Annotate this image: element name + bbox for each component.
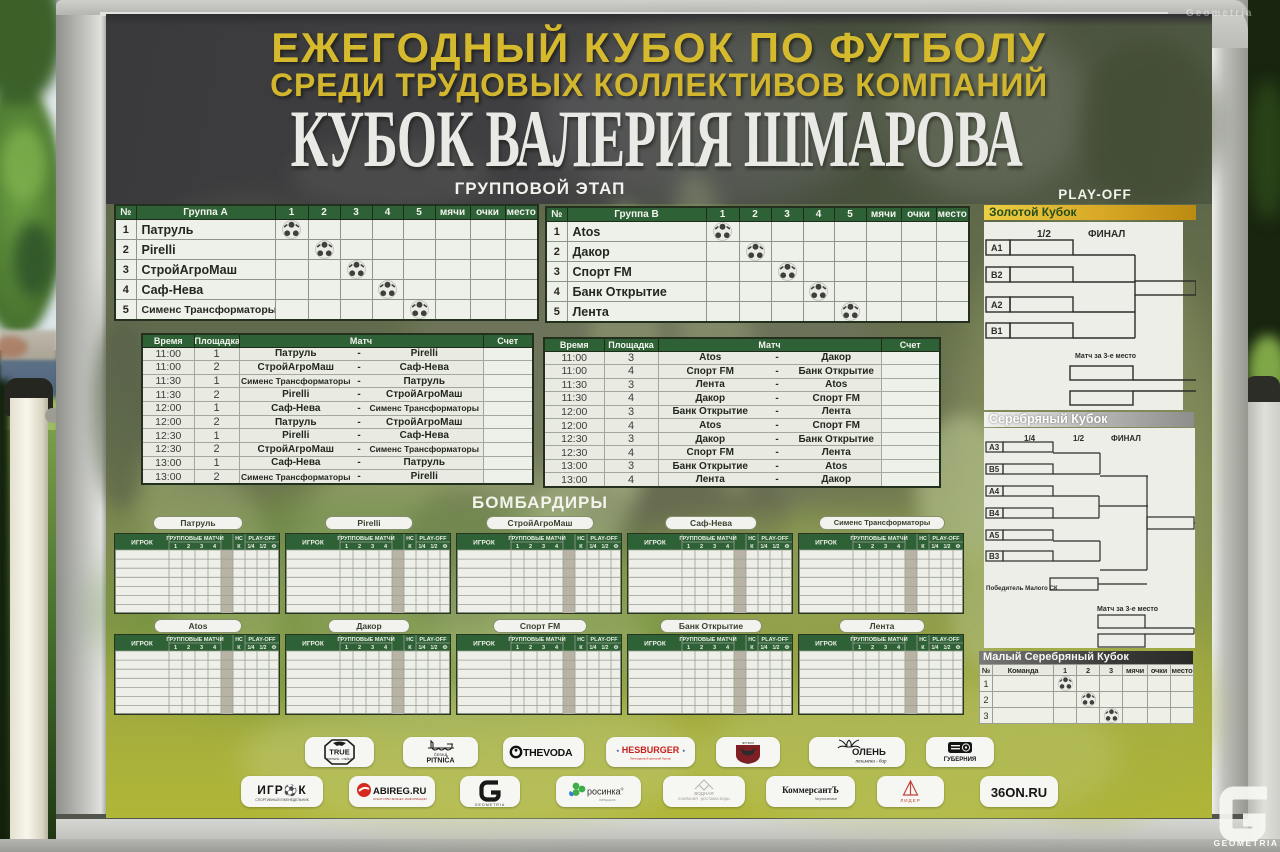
svg-text:GEOMETRIA: GEOMETRIA bbox=[1214, 838, 1279, 848]
svg-text:B1: B1 bbox=[991, 326, 1003, 336]
svg-text:пельмени - бар: пельмени - бар bbox=[855, 760, 887, 765]
svg-text:THEVODA: THEVODA bbox=[523, 747, 573, 759]
svg-text:1/2: 1/2 bbox=[1037, 229, 1051, 240]
svg-text:B3: B3 bbox=[989, 552, 1000, 561]
svg-text:СПОРТИВНЫЙ ЕЖЕНЕДЕЛЬНИК: СПОРТИВНЫЙ ЕЖЕНЕДЕЛЬНИК bbox=[255, 798, 308, 802]
svg-text:БУРГЕРЫ · СТЕЙКИ: БУРГЕРЫ · СТЕЙКИ bbox=[327, 757, 352, 761]
svg-text:A3: A3 bbox=[989, 443, 1000, 452]
svg-text:B4: B4 bbox=[989, 509, 1000, 518]
svg-text:★: ★ bbox=[616, 749, 620, 753]
svg-text:ОЛЕНЬ: ОЛЕНЬ bbox=[852, 747, 886, 758]
svg-text:Легендарный финский бургер: Легендарный финский бургер bbox=[630, 757, 672, 761]
svg-text:КоммерсантЪ: КоммерсантЪ bbox=[782, 785, 839, 795]
svg-text:ABIREG.RU: ABIREG.RU bbox=[373, 786, 426, 797]
svg-text:ФИНАЛ: ФИНАЛ bbox=[1111, 434, 1141, 443]
svg-text:GEOMETRIA: GEOMETRIA bbox=[475, 803, 506, 807]
svg-text:Черноземье: Черноземье bbox=[815, 796, 838, 801]
svg-text:ФИНАЛ: ФИНАЛ bbox=[1088, 229, 1125, 240]
svg-text:росинка®: росинка® bbox=[587, 787, 624, 797]
svg-text:ЛИДЕР: ЛИДЕР bbox=[900, 798, 921, 803]
svg-text:КОМПАНИЯ · ДОСТАВКА ВОДЫ: КОМПАНИЯ · ДОСТАВКА ВОДЫ bbox=[678, 797, 729, 801]
svg-text:PITNIČA: PITNIČA bbox=[427, 756, 455, 765]
svg-text:ИГР⚽К: ИГР⚽К bbox=[257, 783, 306, 797]
svg-text:★: ★ bbox=[682, 749, 686, 753]
svg-text:B2: B2 bbox=[991, 270, 1003, 280]
svg-text:36ON.RU: 36ON.RU bbox=[991, 785, 1047, 800]
svg-text:A5: A5 bbox=[989, 531, 1000, 540]
svg-text:A2: A2 bbox=[991, 300, 1003, 310]
svg-text:ФК-Л: ФК-Л bbox=[745, 761, 752, 765]
svg-text:A1: A1 bbox=[991, 243, 1003, 253]
svg-text:ФУТБОЛ: ФУТБОЛ bbox=[742, 741, 754, 745]
svg-text:A4: A4 bbox=[989, 487, 1000, 496]
svg-text:B5: B5 bbox=[989, 465, 1000, 474]
svg-text:Победитель Малого СК: Победитель Малого СК bbox=[986, 585, 1058, 592]
svg-text:ČESKÁ: ČESKÁ bbox=[434, 752, 448, 757]
svg-text:TRUE: TRUE bbox=[329, 748, 349, 757]
svg-text:HESBURGER: HESBURGER bbox=[622, 745, 680, 755]
svg-text:Матч за 3-е место: Матч за 3-е место bbox=[1097, 606, 1158, 613]
svg-text:ГУБЕРНИЯ: ГУБЕРНИЯ bbox=[944, 757, 976, 763]
svg-text:ЛИПЕЦКАЯ: ЛИПЕЦКАЯ bbox=[599, 798, 615, 802]
svg-text:1/2: 1/2 bbox=[1073, 434, 1085, 443]
svg-text:ВОДНАЯ: ВОДНАЯ bbox=[694, 791, 713, 796]
svg-text:АГЕНТСТВО БИЗНЕС ИНФОРМАЦИИ: АГЕНТСТВО БИЗНЕС ИНФОРМАЦИИ bbox=[373, 797, 427, 801]
svg-text:Матч за 3-е место: Матч за 3-е место bbox=[1075, 353, 1136, 360]
